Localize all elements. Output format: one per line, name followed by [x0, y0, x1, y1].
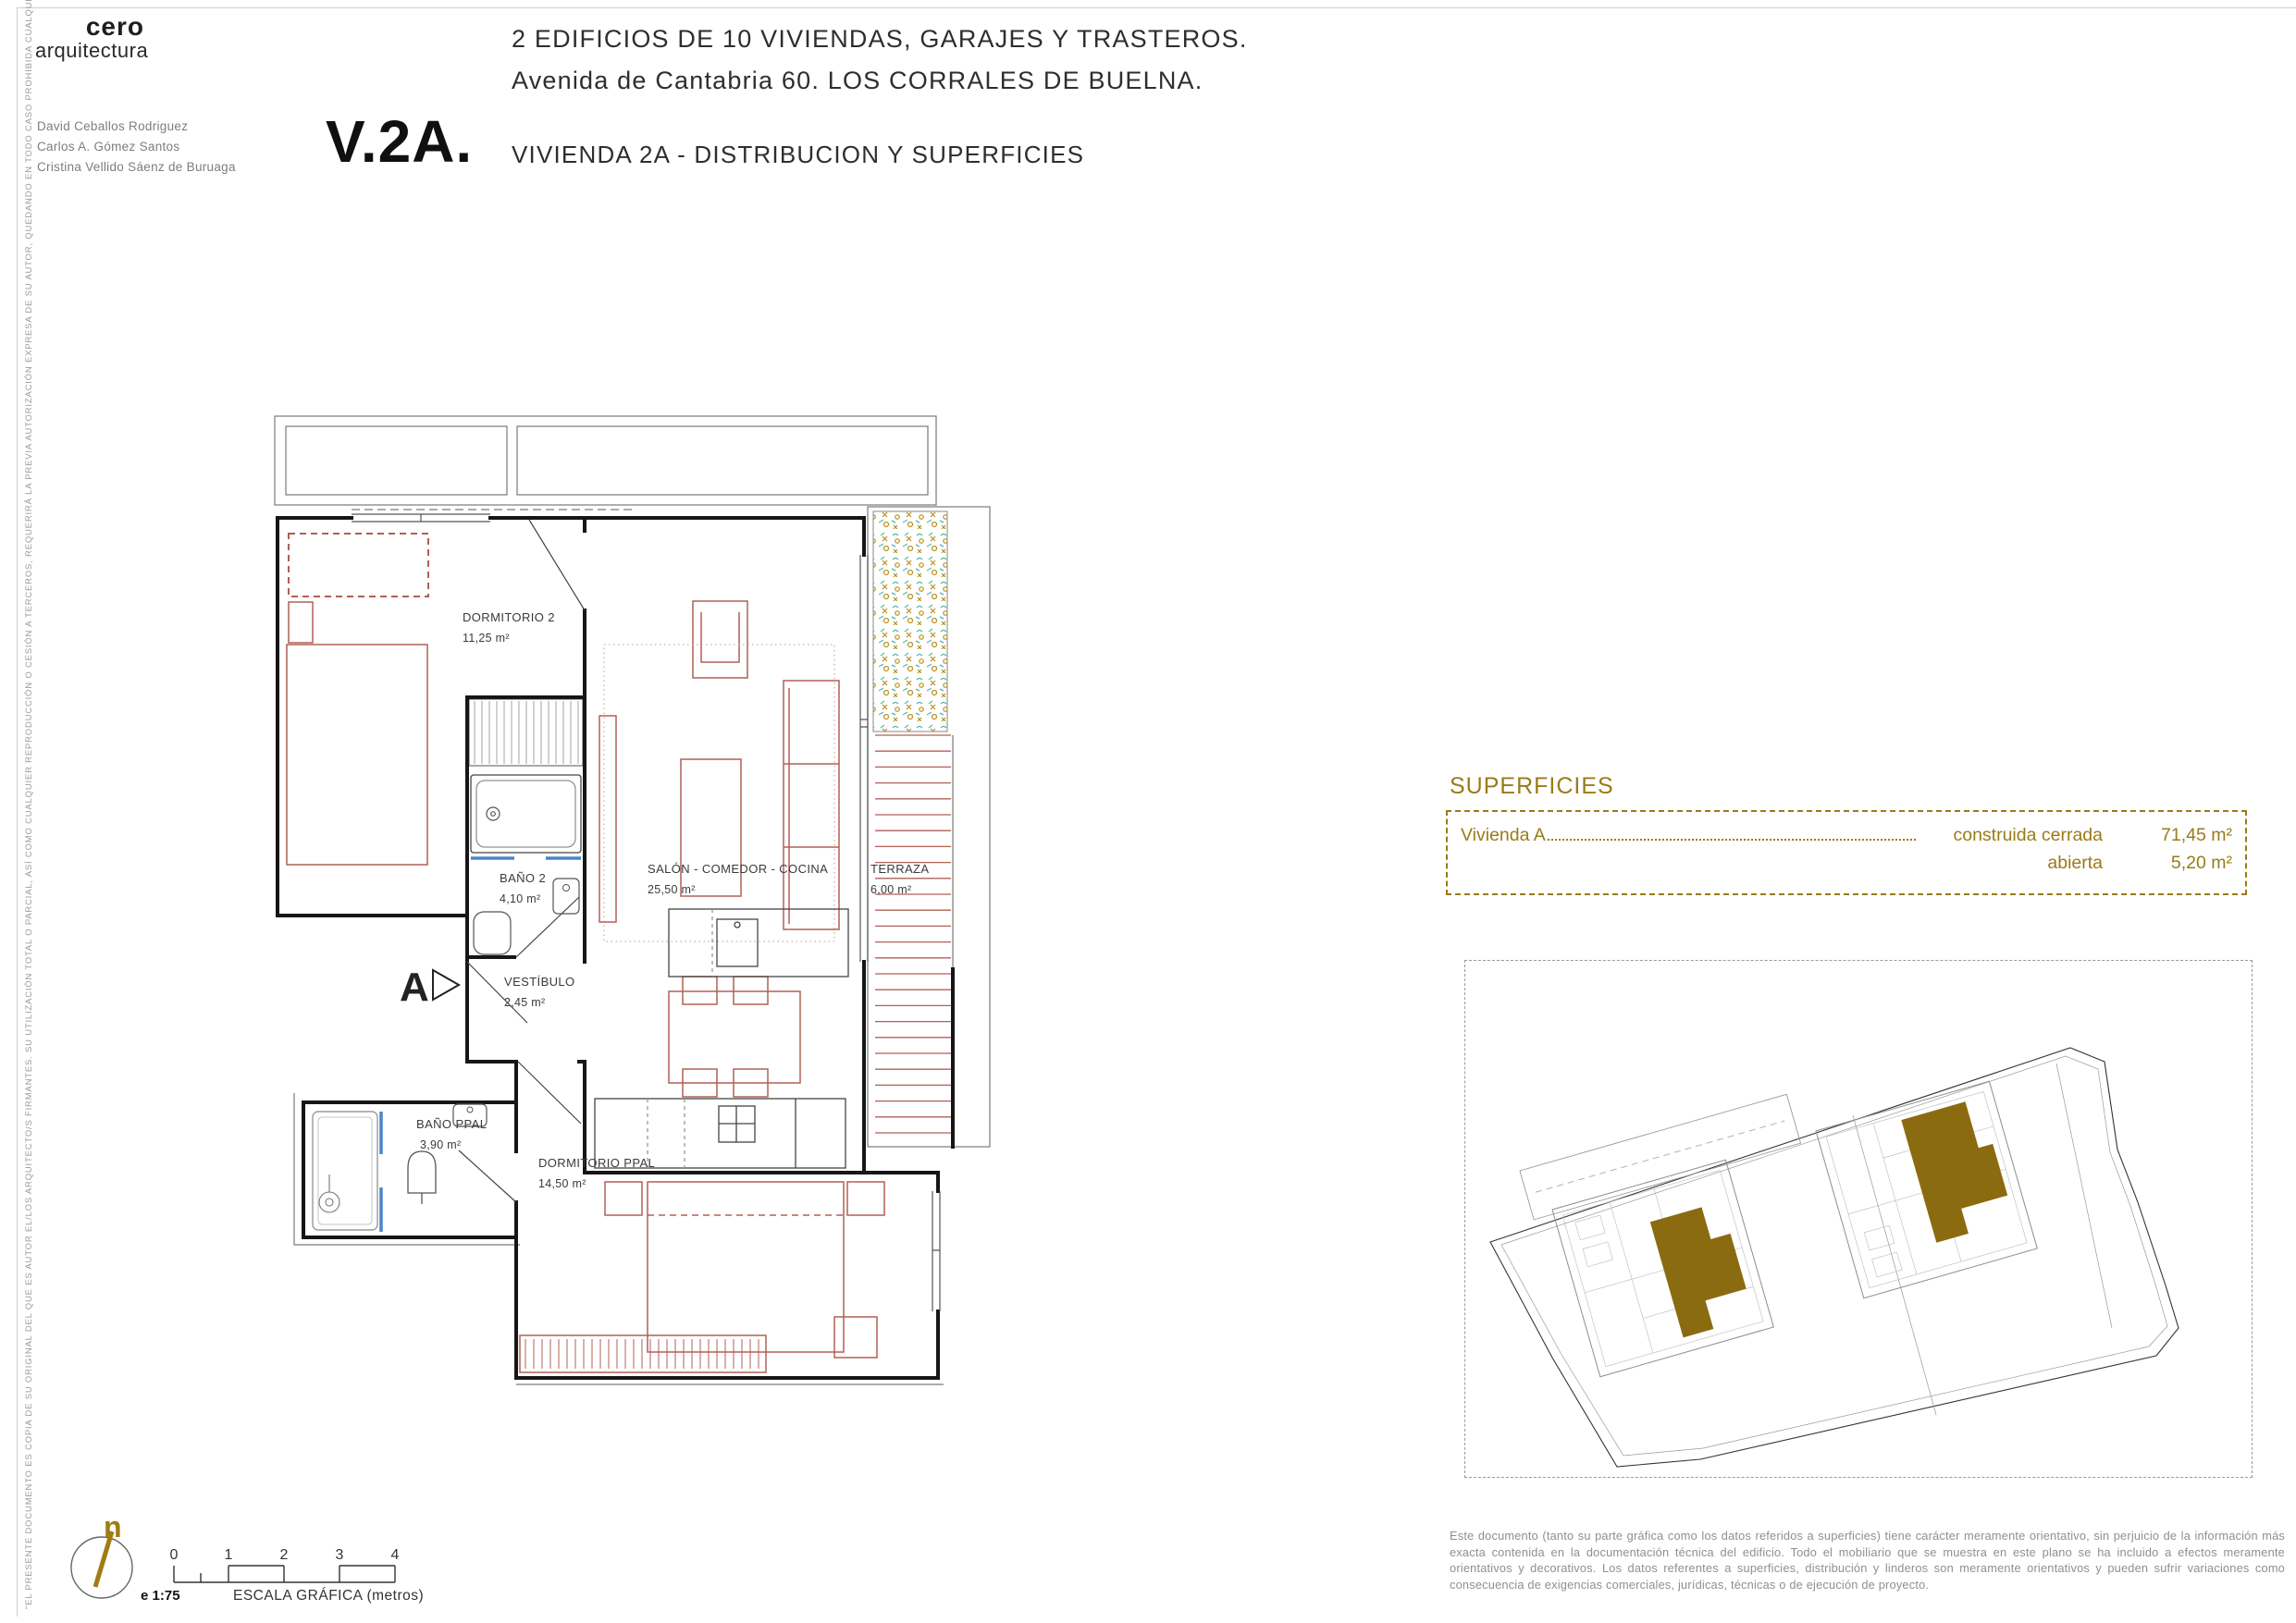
bath2-fixtures — [471, 775, 581, 954]
living-furniture — [599, 601, 839, 1097]
svg-text:3: 3 — [336, 1547, 344, 1563]
room-label-bano2: BAÑO 2 — [500, 871, 546, 885]
room-label-dormppal: DORMITORIO PPAL — [538, 1156, 655, 1170]
kitchen-units — [595, 909, 848, 1168]
floor-plan: A DORMITORIO 2 11,25 m² BAÑO 2 4,10 m² S… — [275, 416, 990, 1384]
site-plan — [1490, 1048, 2179, 1467]
svg-text:25,50 m²: 25,50 m² — [648, 883, 696, 896]
svg-text:2: 2 — [280, 1547, 289, 1563]
svg-text:0: 0 — [170, 1547, 179, 1563]
svg-text:3,90 m²: 3,90 m² — [420, 1138, 461, 1151]
master-bedroom-furniture — [520, 1182, 884, 1372]
room-label-dormitorio2: DORMITORIO 2 — [463, 610, 555, 624]
terrace-stairs — [875, 735, 951, 1133]
scale-ticks: 0 1 2 3 4 — [170, 1547, 400, 1563]
site-annex — [1520, 1094, 1801, 1220]
scale-ratio: e 1:75 — [141, 1588, 180, 1604]
svg-text:4,10 m²: 4,10 m² — [500, 892, 540, 905]
svg-text:n: n — [104, 1510, 122, 1543]
planting-bed — [873, 511, 947, 732]
room-label-banoppal: BAÑO PPAL — [416, 1117, 487, 1131]
walls — [278, 518, 953, 1378]
svg-text:A: A — [400, 965, 429, 1010]
scale-bar: 0 1 2 3 4 e 1:75 ESCALA GRÁFICA (metros) — [141, 1547, 424, 1604]
site-building-2 — [1816, 1081, 2037, 1297]
windows — [352, 514, 940, 1311]
section-marker-a: A — [400, 965, 459, 1010]
drawing-layer: A DORMITORIO 2 11,25 m² BAÑO 2 4,10 m² S… — [0, 0, 2296, 1623]
site-building-1 — [1552, 1160, 1773, 1376]
room-label-terraza: TERRAZA — [870, 862, 929, 876]
room-label-salon: SALÓN - COMEDOR - COCINA — [648, 862, 828, 876]
north-arrow: n — [71, 1510, 132, 1598]
svg-text:1: 1 — [225, 1547, 233, 1563]
svg-text:6,00 m²: 6,00 m² — [870, 883, 911, 896]
svg-text:11,25 m²: 11,25 m² — [463, 632, 510, 645]
wardrobe-hatch — [525, 1339, 759, 1369]
bedroom2-furniture — [287, 534, 428, 865]
svg-text:14,50 m²: 14,50 m² — [538, 1177, 586, 1190]
svg-text:2,45 m²: 2,45 m² — [504, 996, 545, 1009]
highlighted-unit — [1650, 1201, 1755, 1337]
stair-hatch — [475, 701, 578, 764]
scale-label: ESCALA GRÁFICA (metros) — [233, 1588, 424, 1604]
room-label-vestibulo: VESTÍBULO — [504, 975, 575, 989]
highlighted-unit — [1901, 1098, 2015, 1243]
svg-text:4: 4 — [391, 1547, 400, 1563]
stair-box — [469, 699, 583, 766]
